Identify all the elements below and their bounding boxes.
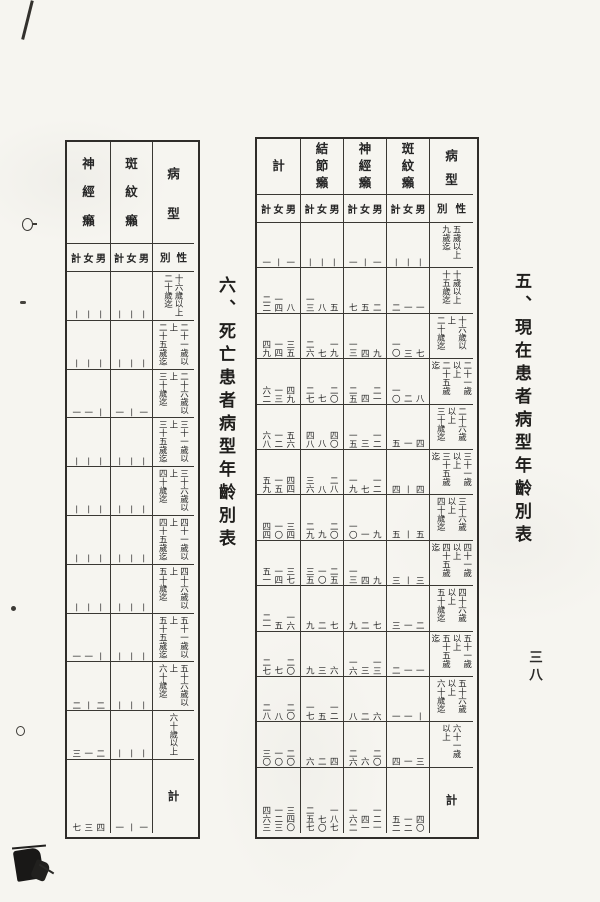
- age-group-label: 十六歲以上二十歲迄: [153, 272, 194, 321]
- age-group-label: 二十六歲以上三十歲迄: [430, 405, 473, 450]
- data-cell: 二七七二〇: [257, 632, 301, 677]
- age-group-label: 二十一歲以上二十五歲迄: [430, 359, 473, 404]
- cell-values: 二五四二一: [344, 386, 386, 403]
- data-cell: 丨丨丨: [301, 223, 344, 268]
- cell-values: 一五三一二: [344, 431, 386, 448]
- age-group-label: 四十六歲以上五十歲迄: [430, 586, 473, 631]
- total-cell: 一六二四一一二一: [344, 768, 387, 833]
- death-table-title: 六、死亡患者病型年齡別表: [213, 276, 238, 552]
- current-patients-table: 計結節癩神經癩斑紋癩病型計女男計女男計女男計女男別性一丨一丨丨丨一丨一丨丨丨五歲…: [255, 137, 479, 839]
- total-cell: 七三四: [67, 760, 111, 833]
- cell-values: 丨丨丨: [111, 310, 152, 319]
- cell-values: 一〇三七: [387, 340, 429, 357]
- data-cell: 九三六: [301, 632, 344, 677]
- data-cell: 二六六二〇: [344, 722, 387, 767]
- cell-values: 丨丨丨: [301, 258, 343, 267]
- age-group-label: 二十一歲以上二十五歲迄: [153, 321, 194, 370]
- cell-values: 六二四: [301, 757, 343, 766]
- cell-values: 二一一: [387, 303, 429, 312]
- total-cell: 一丨一: [111, 760, 153, 833]
- cell-values: 二六六二〇: [344, 749, 386, 766]
- age-group-label: 六十一歲以上: [430, 722, 473, 767]
- cell-values: 四丨四: [387, 485, 429, 494]
- data-cell: 丨丨丨: [111, 321, 153, 370]
- cell-values: 四一三: [387, 757, 429, 766]
- data-cell: 二七七二〇: [301, 359, 344, 404]
- data-cell: 四八八四〇: [301, 405, 344, 450]
- data-cell: 六二一三四九: [257, 359, 301, 404]
- sex-subcol-header: 計女男: [301, 195, 344, 223]
- data-cell: 二五四二一: [344, 359, 387, 404]
- data-cell: 一七五一二: [301, 677, 344, 722]
- cell-values: 一〇二八: [387, 386, 429, 403]
- data-cell: 二丨二: [67, 662, 111, 711]
- age-group-label: 十六歲以上二十歲迄: [430, 314, 473, 359]
- data-cell: 一一丨: [387, 677, 430, 722]
- cell-values: 丨丨丨: [111, 749, 152, 758]
- cell-values: 丨丨丨: [67, 554, 110, 563]
- data-cell: 六八一二五六: [257, 405, 301, 450]
- data-cell: 丨丨丨: [67, 418, 111, 467]
- data-cell: 三五一〇二五: [301, 541, 344, 586]
- scan-artifact-corner-line: [21, 0, 33, 39]
- data-cell: 四丨四: [387, 450, 430, 495]
- age-group-label: 六十歲以上: [153, 711, 194, 760]
- data-cell: 四四一〇三四: [257, 495, 301, 540]
- age-group-label: 四十一歲以上四十五歲迄: [430, 541, 473, 586]
- data-cell: 二九九二〇: [301, 495, 344, 540]
- cell-values: 六二一三四九: [257, 386, 300, 403]
- data-cell: 丨丨丨: [67, 516, 111, 565]
- cell-values: 四六三一二三三四〇: [257, 806, 300, 832]
- cell-values: 二八八二〇: [257, 703, 300, 720]
- data-cell: 四一三: [387, 722, 430, 767]
- corner-header-disease-type: 病型: [153, 142, 194, 244]
- age-group-label: 五歲以上九歲迄: [430, 223, 473, 268]
- cell-values: 一三八五: [301, 295, 343, 312]
- scan-artifact-ring: [16, 726, 25, 736]
- age-group-label: 四十一歲以上四十五歲迄: [153, 516, 194, 565]
- cell-values: 五九一五四四: [257, 476, 300, 493]
- data-cell: 八二六: [344, 677, 387, 722]
- scan-artifact-ink-blot: [12, 845, 46, 850]
- disease-col-header: 計: [257, 139, 301, 195]
- cell-values: 五一四: [387, 439, 429, 448]
- data-cell: 丨丨丨: [387, 223, 430, 268]
- data-cell: 丨丨丨: [67, 272, 111, 321]
- cell-values: 三一二: [67, 749, 110, 758]
- cell-values: 丨丨丨: [387, 258, 429, 267]
- data-cell: 一〇二八: [387, 359, 430, 404]
- cell-values: 五二一二四〇: [387, 815, 429, 832]
- age-group-label: 四十六歲以上五十歲迄: [153, 565, 194, 614]
- cell-values: 五一一四三七: [257, 567, 300, 584]
- cell-values: 一丨一: [344, 258, 386, 267]
- sex-subcol-header: 計女男: [67, 244, 111, 272]
- corner-header-sex: 別性: [430, 195, 473, 223]
- age-group-label: 五十六歲以上六十歲迄: [430, 677, 473, 722]
- scan-artifact-speck: [20, 301, 26, 304]
- scan-artifact-speck: [11, 606, 16, 611]
- disease-col-header: 斑紋癩: [387, 139, 430, 195]
- data-cell: 九二七: [301, 586, 344, 631]
- total-cell: 五二一二四〇: [387, 768, 430, 833]
- data-cell: 一〇一九: [344, 495, 387, 540]
- cell-values: 一一丨: [67, 408, 110, 417]
- cell-values: 丨丨丨: [67, 457, 110, 466]
- cell-values: 七三四: [67, 823, 110, 832]
- cell-values: 四四一〇三四: [257, 522, 300, 539]
- cell-values: 二六七一九: [301, 340, 343, 357]
- data-cell: 一丨一: [111, 370, 153, 419]
- cell-values: 一三四九: [344, 340, 386, 357]
- data-cell: 一三四九: [344, 314, 387, 359]
- death-patients-table: 神經癩斑紋癩病型計女男計女男別性丨丨丨丨丨丨十六歲以上二十歲迄丨丨丨丨丨丨二十一…: [65, 140, 200, 839]
- data-cell: 四九一四三五: [257, 314, 301, 359]
- cell-values: 丨丨丨: [67, 359, 110, 368]
- data-cell: 三一二: [67, 711, 111, 760]
- cell-values: 八二六: [344, 712, 386, 721]
- age-group-label: 三十六歲以上四十歲迄: [153, 467, 194, 516]
- data-cell: 三六八二八: [301, 450, 344, 495]
- cell-values: 二九九二〇: [301, 522, 343, 539]
- data-cell: 一六三一三: [344, 632, 387, 677]
- cell-values: 丨丨丨: [67, 505, 110, 514]
- disease-col-header: 神經癩: [344, 139, 387, 195]
- current-table-title: 五、現在患者病型年齡別表: [509, 272, 534, 548]
- data-cell: 丨丨丨: [111, 662, 153, 711]
- cell-values: 一〇一九: [344, 522, 386, 539]
- cell-values: 一七五一二: [301, 703, 343, 720]
- cell-values: 丨丨丨: [111, 505, 152, 514]
- scanned-document-page: { "page_number": "三八", "tables": { "curr…: [0, 0, 600, 902]
- data-cell: 五丨五: [387, 495, 430, 540]
- cell-values: 一三四九: [344, 567, 386, 584]
- total-cell: 四六三一二三三四〇: [257, 768, 301, 833]
- data-cell: 丨丨丨: [67, 467, 111, 516]
- cell-values: 三丨三: [387, 576, 429, 585]
- data-cell: 二一一: [387, 268, 430, 313]
- data-cell: 丨丨丨: [111, 711, 153, 760]
- cell-values: 一六三一三: [344, 658, 386, 675]
- cell-values: 丨丨丨: [111, 457, 152, 466]
- cell-values: 九二七: [344, 621, 386, 630]
- scan-artifact-ink-blot: [39, 864, 54, 875]
- data-cell: 三〇一〇二〇: [257, 722, 301, 767]
- sex-subcol-header: 計女男: [111, 244, 153, 272]
- cell-values: 四八八四〇: [301, 431, 343, 448]
- data-cell: 五一四: [387, 405, 430, 450]
- scan-artifact-ink-blot: [30, 859, 51, 882]
- cell-values: 丨丨丨: [67, 603, 110, 612]
- data-cell: 二一五一六: [257, 586, 301, 631]
- cell-values: 七五二: [344, 303, 386, 312]
- data-cell: 二二一四八: [257, 268, 301, 313]
- sex-subcol-header: 計女男: [387, 195, 430, 223]
- cell-values: 二二一四八: [257, 295, 300, 312]
- cell-values: 二七七二〇: [257, 658, 300, 675]
- corner-header-disease-type: 病型: [430, 139, 473, 195]
- cell-values: 一丨一: [257, 258, 300, 267]
- scan-artifact-ink-blot: [13, 847, 45, 882]
- data-cell: 丨丨丨: [111, 418, 153, 467]
- total-cell: 二五七七〇一八七: [301, 768, 344, 833]
- age-group-label: 三十一歲以上三十五歲迄: [153, 418, 194, 467]
- data-cell: 丨丨丨: [67, 565, 111, 614]
- cell-values: 一一丨: [387, 712, 429, 721]
- disease-col-header: 斑紋癩: [111, 142, 153, 244]
- age-group-label: 三十六歲以上四十歲迄: [430, 495, 473, 540]
- cell-values: 二一一: [387, 666, 429, 675]
- data-cell: 一五三一二: [344, 405, 387, 450]
- data-cell: 丨丨丨: [111, 614, 153, 663]
- data-cell: 丨丨丨: [111, 272, 153, 321]
- total-row-label: 計: [153, 760, 194, 833]
- cell-values: 二丨二: [67, 701, 110, 710]
- cell-values: 丨丨丨: [111, 603, 152, 612]
- data-cell: 三丨三: [387, 541, 430, 586]
- cell-values: 三六八二八: [301, 476, 343, 493]
- cell-values: 一一丨: [67, 652, 110, 661]
- cell-values: 一丨一: [111, 408, 152, 417]
- age-group-label: 二十六歲以上三十歲迄: [153, 370, 194, 419]
- cell-values: 一六二四一一二一: [344, 806, 386, 832]
- data-cell: 一三四九: [344, 541, 387, 586]
- data-cell: 一〇三七: [387, 314, 430, 359]
- cell-values: 九三六: [301, 666, 343, 675]
- cell-values: 三五一〇二五: [301, 567, 343, 584]
- data-cell: 一九七一二: [344, 450, 387, 495]
- data-cell: 五一一四三七: [257, 541, 301, 586]
- disease-col-header: 神經癩: [67, 142, 111, 244]
- data-cell: 一一丨: [67, 614, 111, 663]
- age-group-label: 五十一歲以上五十五歲迄: [153, 614, 194, 663]
- cell-values: 丨丨丨: [111, 652, 152, 661]
- cell-values: 三〇一〇二〇: [257, 749, 300, 766]
- data-cell: 一一丨: [67, 370, 111, 419]
- age-group-label: 三十一歲以上三十五歲迄: [430, 450, 473, 495]
- data-cell: 二八八二〇: [257, 677, 301, 722]
- sex-subcol-header: 計女男: [257, 195, 301, 223]
- cell-values: 二一五一六: [257, 613, 300, 630]
- data-cell: 丨丨丨: [111, 565, 153, 614]
- age-group-label: 五十一歲以上五十五歲迄: [430, 632, 473, 677]
- cell-values: 二五七七〇一八七: [301, 806, 343, 832]
- disease-col-header: 結節癩: [301, 139, 344, 195]
- cell-values: 九二七: [301, 621, 343, 630]
- cell-values: 丨丨丨: [111, 554, 152, 563]
- cell-values: 丨丨丨: [111, 359, 152, 368]
- cell-values: 四九一四三五: [257, 340, 300, 357]
- cell-values: 丨丨丨: [111, 701, 152, 710]
- cell-values: 五丨五: [387, 530, 429, 539]
- data-cell: 一丨一: [257, 223, 301, 268]
- data-cell: 七五二: [344, 268, 387, 313]
- total-row-label: 計: [430, 768, 473, 833]
- cell-values: 六八一二五六: [257, 431, 300, 448]
- data-cell: 一三八五: [301, 268, 344, 313]
- data-cell: 丨丨丨: [67, 321, 111, 370]
- cell-values: 三一二: [387, 621, 429, 630]
- data-cell: 九二七: [344, 586, 387, 631]
- data-cell: 三一二: [387, 586, 430, 631]
- data-cell: 丨丨丨: [111, 467, 153, 516]
- data-cell: 丨丨丨: [111, 516, 153, 565]
- age-group-label: 十歲以上十五歲迄: [430, 268, 473, 313]
- cell-values: 一丨一: [111, 823, 152, 832]
- data-cell: 二一一: [387, 632, 430, 677]
- cell-values: 一九七一二: [344, 476, 386, 493]
- data-cell: 一丨一: [344, 223, 387, 268]
- page-number: 三八: [524, 650, 544, 685]
- corner-header-sex: 別性: [153, 244, 194, 272]
- scan-artifact-ring: [22, 218, 33, 231]
- data-cell: 六二四: [301, 722, 344, 767]
- cell-values: 二七七二〇: [301, 386, 343, 403]
- cell-values: 丨丨丨: [67, 310, 110, 319]
- age-group-label: 五十六歲以上六十歲迄: [153, 662, 194, 711]
- data-cell: 二六七一九: [301, 314, 344, 359]
- sex-subcol-header: 計女男: [344, 195, 387, 223]
- data-cell: 五九一五四四: [257, 450, 301, 495]
